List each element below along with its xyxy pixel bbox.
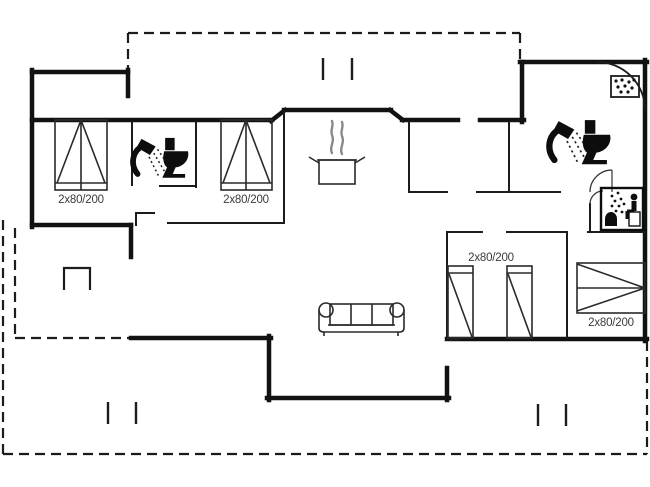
sofa [319, 303, 404, 336]
bed-southeast [577, 263, 645, 313]
floor-plan-canvas: 2x80/200 2x80/200 2x80/200 2x80/200 [0, 0, 650, 487]
corner-shower-icon [597, 62, 645, 110]
bed-northwest [55, 120, 107, 190]
terrace-entry-ticks [108, 58, 566, 426]
bathroom1-icons [133, 138, 188, 178]
bathroom2-icons [549, 120, 610, 164]
bed-label-1: 2x80/200 [58, 194, 104, 206]
bed-label-2: 2x80/200 [223, 194, 269, 206]
toilet-icon [162, 138, 188, 178]
exterior-walls [32, 60, 647, 400]
beds-south-center [448, 266, 532, 338]
bed-label-3: 2x80/200 [468, 252, 514, 264]
terrace-outline-dashed [3, 33, 647, 454]
floor-plan: 2x80/200 2x80/200 2x80/200 2x80/200 [0, 0, 650, 487]
cooking-pot-icon [309, 121, 365, 184]
bed-north-center [221, 120, 272, 190]
interior-walls [132, 112, 645, 340]
terrace-grill-icon [64, 268, 90, 290]
sauna-icon [601, 188, 643, 230]
bed-label-4: 2x80/200 [588, 317, 634, 329]
toilet-icon [582, 120, 611, 164]
